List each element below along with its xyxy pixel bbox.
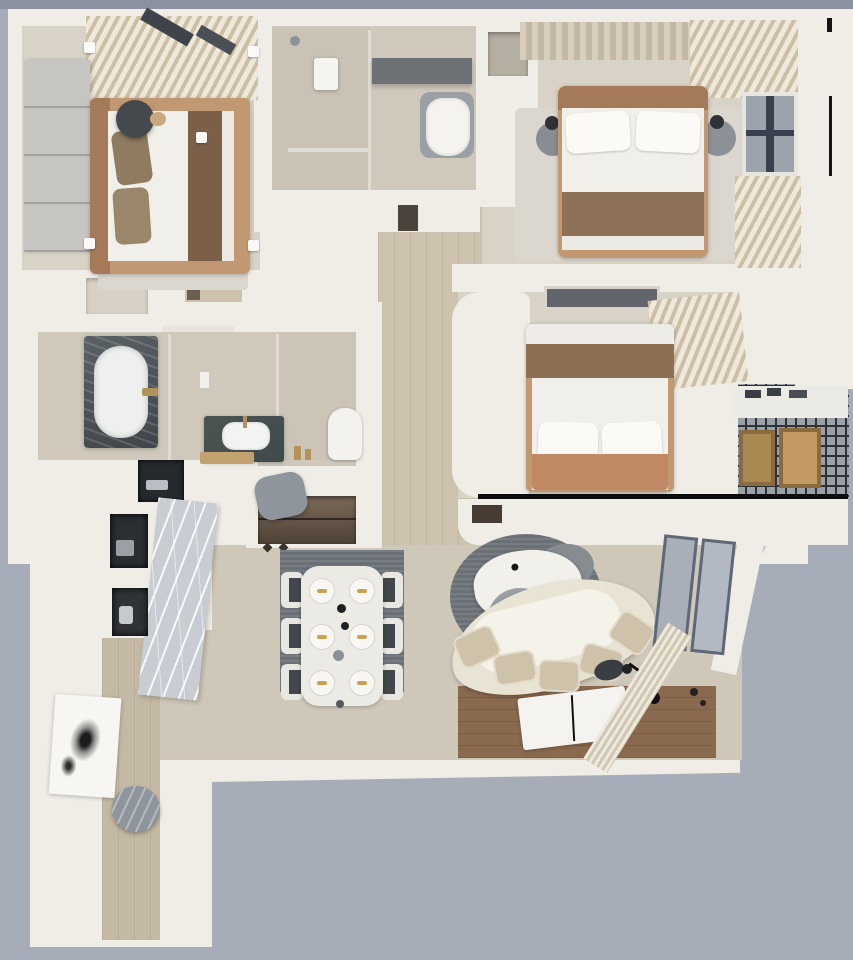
plate-1 xyxy=(309,578,335,604)
wall-right-outer-band xyxy=(795,9,853,389)
chair-seat-dark xyxy=(383,670,395,694)
white-tag-3 xyxy=(84,238,95,249)
bed-mid-right-headboard-band xyxy=(526,344,674,378)
wall-mid-left-b xyxy=(242,270,378,302)
balcony-hob-dark-b xyxy=(767,388,781,396)
glass-partition-main-a xyxy=(168,334,171,462)
sofa-cushion-3 xyxy=(537,659,580,692)
table-decor-dark-b xyxy=(341,622,349,630)
balcony-crate-left xyxy=(739,430,775,486)
bed-master-frame xyxy=(558,86,708,258)
tan-bowl-decor xyxy=(150,112,166,126)
balcony-hob-dark-a xyxy=(745,390,761,398)
towel-bar xyxy=(162,326,234,332)
side-table-round-dark xyxy=(116,100,154,138)
glass-partition-ensuite xyxy=(368,30,371,190)
napkin-ring-gold xyxy=(357,589,367,593)
balcony-counter xyxy=(735,386,848,418)
bathtub-inner xyxy=(94,346,148,438)
white-tag-5 xyxy=(196,132,207,143)
napkin-ring-gold xyxy=(317,589,327,593)
ink-artwork xyxy=(49,694,122,798)
dining-chair-left-2 xyxy=(281,618,303,654)
floor-shower-zone-ensuite xyxy=(266,28,370,190)
artwork-ink-blob-b xyxy=(60,754,77,777)
chair-seat-dark xyxy=(383,624,395,648)
bedroom-mid-right-left-wall xyxy=(452,292,530,498)
bed-master-pillow-left xyxy=(565,110,632,154)
vanity-tap-gold xyxy=(243,416,247,428)
chair-seat-dark xyxy=(383,578,395,602)
coffee-table-ink-decor xyxy=(511,563,519,571)
ceiling-vent-dark xyxy=(544,286,660,310)
appliance-coffee-machine xyxy=(116,540,134,556)
table-decor-below xyxy=(336,700,344,708)
top-strip xyxy=(0,0,853,9)
wall-band-dark-niche xyxy=(472,505,502,523)
bed-mid-right-top-shelf xyxy=(526,324,674,344)
dining-chair-left-3 xyxy=(281,664,303,700)
napkin-ring-gold xyxy=(357,635,367,639)
bed-mid-right-frame xyxy=(526,324,674,492)
chair-seat-dark xyxy=(289,624,301,648)
curtain-master-top-right xyxy=(690,20,798,98)
napkin-ring-gold xyxy=(317,635,327,639)
toilet-main xyxy=(328,408,362,460)
dining-chair-right-2 xyxy=(381,618,403,654)
bathtub-faucet-gold xyxy=(142,388,158,396)
window-edge-black-line xyxy=(829,96,832,176)
plate-2 xyxy=(349,578,375,604)
bed-top-left-frame xyxy=(90,98,250,274)
wall-ensuite-bottom xyxy=(254,190,480,232)
bed-master-foot-white xyxy=(562,236,704,250)
tv-black-line xyxy=(571,695,575,741)
door-panel-right xyxy=(690,538,736,655)
kitchen-niche-opening-1 xyxy=(110,514,148,568)
window-corner-black-tick xyxy=(827,18,832,32)
decor-dot-b xyxy=(700,700,706,706)
dining-chair-right-3 xyxy=(381,664,403,700)
hallway-doormat xyxy=(398,205,418,231)
napkin-ring-gold xyxy=(357,681,367,685)
dining-chair-right-1 xyxy=(381,572,403,608)
gold-bottle-a xyxy=(294,446,301,460)
kitchen-upper-shelf-dark xyxy=(138,460,184,502)
plate-3 xyxy=(309,624,335,650)
round-stool-gray xyxy=(112,786,160,832)
bed-mid-right-blanket-tan xyxy=(532,454,668,490)
wall-left-outer-mid xyxy=(8,302,38,472)
apartment-floorplan-render xyxy=(0,0,853,960)
shampoo-bottle xyxy=(200,372,209,388)
lamp-master-right xyxy=(710,115,724,129)
napkin-ring-gold xyxy=(317,681,327,685)
kitchen-niche-opening-2 xyxy=(112,588,148,636)
plate-6 xyxy=(349,670,375,696)
appliance-kettle xyxy=(119,606,133,624)
plate-4 xyxy=(349,624,375,650)
table-decor-dark-a xyxy=(337,604,346,613)
chair-seat-dark xyxy=(289,578,301,602)
white-tag-1 xyxy=(84,42,95,53)
table-decor-gray xyxy=(333,650,344,661)
decor-dot-a xyxy=(690,688,698,696)
bed-top-left-pillow-2 xyxy=(112,187,152,245)
chair-seat-dark xyxy=(289,670,301,694)
shower-control-panel xyxy=(314,58,338,90)
glass-shelf-ensuite xyxy=(288,148,370,152)
vanity-wood-tray xyxy=(200,452,254,464)
gold-bottle-b xyxy=(305,449,311,460)
bed-top-left-foot-white xyxy=(222,111,234,261)
shower-head-fitting xyxy=(290,36,300,46)
toilet-ensuite-bowl xyxy=(426,98,470,156)
wardrobe-top-left xyxy=(24,60,90,252)
kitchen-shelf-items xyxy=(146,480,168,490)
wall-left-outer-top xyxy=(8,9,22,303)
dining-chair-left-1 xyxy=(281,572,303,608)
white-tag-2 xyxy=(248,46,259,57)
plate-5 xyxy=(309,670,335,696)
balcony-sink-dark xyxy=(789,390,807,398)
wardrobe-louvre-panel-master xyxy=(520,22,692,60)
bed-master-pillow-right xyxy=(635,110,701,153)
curtain-master-below-window xyxy=(735,176,801,268)
white-tag-4 xyxy=(248,240,259,251)
ensuite-counter-dark xyxy=(372,58,472,84)
window-master-right xyxy=(742,92,798,176)
bed-master-headboard xyxy=(558,86,708,110)
balcony-crate-right xyxy=(779,428,821,488)
bed-master-blanket xyxy=(562,192,704,236)
lamp-master-left xyxy=(545,116,559,130)
window-frame-vbar xyxy=(766,96,774,172)
